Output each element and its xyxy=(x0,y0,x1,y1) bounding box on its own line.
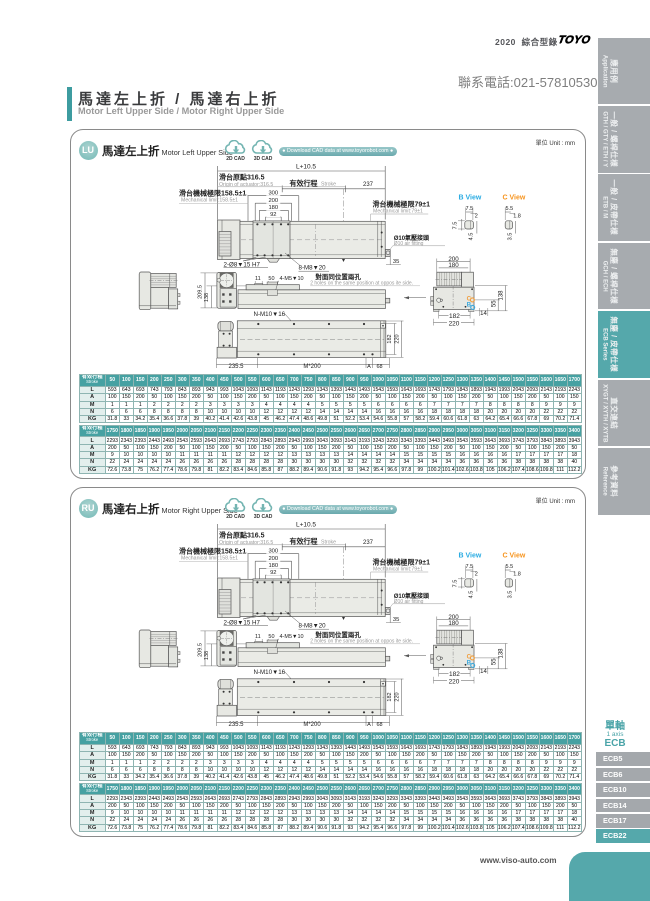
svg-text:220: 220 xyxy=(449,678,460,685)
svg-text:C View: C View xyxy=(503,553,526,560)
svg-text:2-Ø8▼15 H7: 2-Ø8▼15 H7 xyxy=(224,261,261,268)
svg-text:209.5: 209.5 xyxy=(198,285,204,299)
svg-text:滑台原點316.5: 滑台原點316.5 xyxy=(219,173,265,182)
svg-text:182: 182 xyxy=(387,692,393,701)
svg-text:3.5: 3.5 xyxy=(507,591,513,599)
svg-text:209.5: 209.5 xyxy=(198,643,204,657)
svg-text:C View: C View xyxy=(503,195,526,202)
svg-text:Mechanical limit:158.5±1: Mechanical limit:158.5±1 xyxy=(181,198,238,204)
svg-text:N-M10▼16: N-M10▼16 xyxy=(254,669,286,676)
svg-text:8-M8▼20: 8-M8▼20 xyxy=(299,265,327,272)
svg-text:L+10.5: L+10.5 xyxy=(296,522,316,529)
svg-text:7.5: 7.5 xyxy=(466,206,474,212)
svg-text:5.5: 5.5 xyxy=(506,206,514,212)
svg-text:4-M5▼10: 4-M5▼10 xyxy=(280,276,304,282)
svg-text:4-M5▼10: 4-M5▼10 xyxy=(280,634,304,640)
svg-text:1.8: 1.8 xyxy=(513,214,521,220)
svg-text:11: 11 xyxy=(255,634,261,640)
svg-text:對面同位置兩孔: 對面同位置兩孔 xyxy=(315,630,361,639)
svg-text:235.5: 235.5 xyxy=(228,722,244,728)
svg-text:Mechanical limit:79±1: Mechanical limit:79±1 xyxy=(373,209,423,215)
svg-text:200: 200 xyxy=(268,198,278,204)
svg-text:182: 182 xyxy=(449,313,460,320)
svg-text:68: 68 xyxy=(376,364,382,370)
svg-text:Mechanical limit:158.5±1: Mechanical limit:158.5±1 xyxy=(181,556,238,562)
svg-text:235.5: 235.5 xyxy=(228,364,244,370)
svg-text:14: 14 xyxy=(480,669,487,675)
svg-text:N-M10▼16: N-M10▼16 xyxy=(254,311,286,318)
svg-text:180: 180 xyxy=(448,262,459,269)
svg-text:5.5: 5.5 xyxy=(506,564,514,570)
svg-text:7.5: 7.5 xyxy=(466,564,474,570)
svg-text:50: 50 xyxy=(268,634,274,640)
svg-text:有效行程: 有效行程 xyxy=(290,537,318,546)
svg-text:180: 180 xyxy=(268,205,278,211)
svg-text:50: 50 xyxy=(268,276,274,282)
svg-text:2: 2 xyxy=(475,214,478,220)
svg-text:35: 35 xyxy=(393,617,399,623)
svg-text:滑台機械極限79±1: 滑台機械極限79±1 xyxy=(373,557,431,566)
svg-text:2: 2 xyxy=(475,572,478,578)
svg-text:68: 68 xyxy=(376,722,382,728)
svg-text:35: 35 xyxy=(393,259,399,265)
svg-text:Mechanical limit:79±1: Mechanical limit:79±1 xyxy=(373,567,423,573)
svg-text:1.8: 1.8 xyxy=(513,572,521,578)
svg-text:滑台機械極限158.5±1: 滑台機械極限158.5±1 xyxy=(179,189,246,198)
svg-text:L+10.5: L+10.5 xyxy=(296,164,316,171)
svg-text:220: 220 xyxy=(394,692,400,701)
svg-text:滑台機械極限79±1: 滑台機械極限79±1 xyxy=(373,199,431,208)
svg-text:138: 138 xyxy=(499,648,505,659)
svg-text:200: 200 xyxy=(268,556,278,562)
svg-text:7.5: 7.5 xyxy=(453,222,459,230)
svg-text:55: 55 xyxy=(492,300,498,307)
svg-text:237: 237 xyxy=(363,182,374,188)
svg-text:138: 138 xyxy=(499,290,505,301)
svg-text:對面同位置兩孔: 對面同位置兩孔 xyxy=(315,272,361,281)
svg-text:M*200: M*200 xyxy=(303,722,321,728)
svg-text:11: 11 xyxy=(255,276,261,282)
svg-text:A: A xyxy=(367,722,371,728)
svg-text:有效行程: 有效行程 xyxy=(290,179,318,188)
svg-text:180: 180 xyxy=(268,563,278,569)
svg-text:92: 92 xyxy=(270,212,276,218)
svg-text:14: 14 xyxy=(480,311,487,317)
svg-text:4.5: 4.5 xyxy=(469,591,475,599)
svg-text:4.5: 4.5 xyxy=(469,233,475,241)
svg-text:3.5: 3.5 xyxy=(507,233,513,241)
svg-text:237: 237 xyxy=(363,540,374,546)
svg-text:55: 55 xyxy=(492,658,498,665)
svg-text:220: 220 xyxy=(394,334,400,343)
svg-text:182: 182 xyxy=(387,334,393,343)
svg-text:138: 138 xyxy=(204,651,210,660)
svg-text:2-Ø8▼15 H7: 2-Ø8▼15 H7 xyxy=(224,619,261,626)
svg-text:138: 138 xyxy=(204,293,210,302)
svg-text:A: A xyxy=(367,364,371,370)
svg-text:B View: B View xyxy=(459,553,482,560)
svg-text:M*200: M*200 xyxy=(303,364,321,370)
svg-text:滑台原點316.5: 滑台原點316.5 xyxy=(219,531,265,540)
svg-text:180: 180 xyxy=(448,620,459,627)
svg-text:滑台機械極限158.5±1: 滑台機械極限158.5±1 xyxy=(179,547,246,556)
svg-text:300: 300 xyxy=(268,549,278,555)
svg-text:220: 220 xyxy=(449,320,460,327)
svg-text:8-M8▼20: 8-M8▼20 xyxy=(299,623,327,630)
svg-text:182: 182 xyxy=(449,671,460,678)
svg-text:7.5: 7.5 xyxy=(453,580,459,588)
svg-text:B View: B View xyxy=(459,195,482,202)
svg-text:92: 92 xyxy=(270,570,276,576)
svg-text:300: 300 xyxy=(268,191,278,197)
